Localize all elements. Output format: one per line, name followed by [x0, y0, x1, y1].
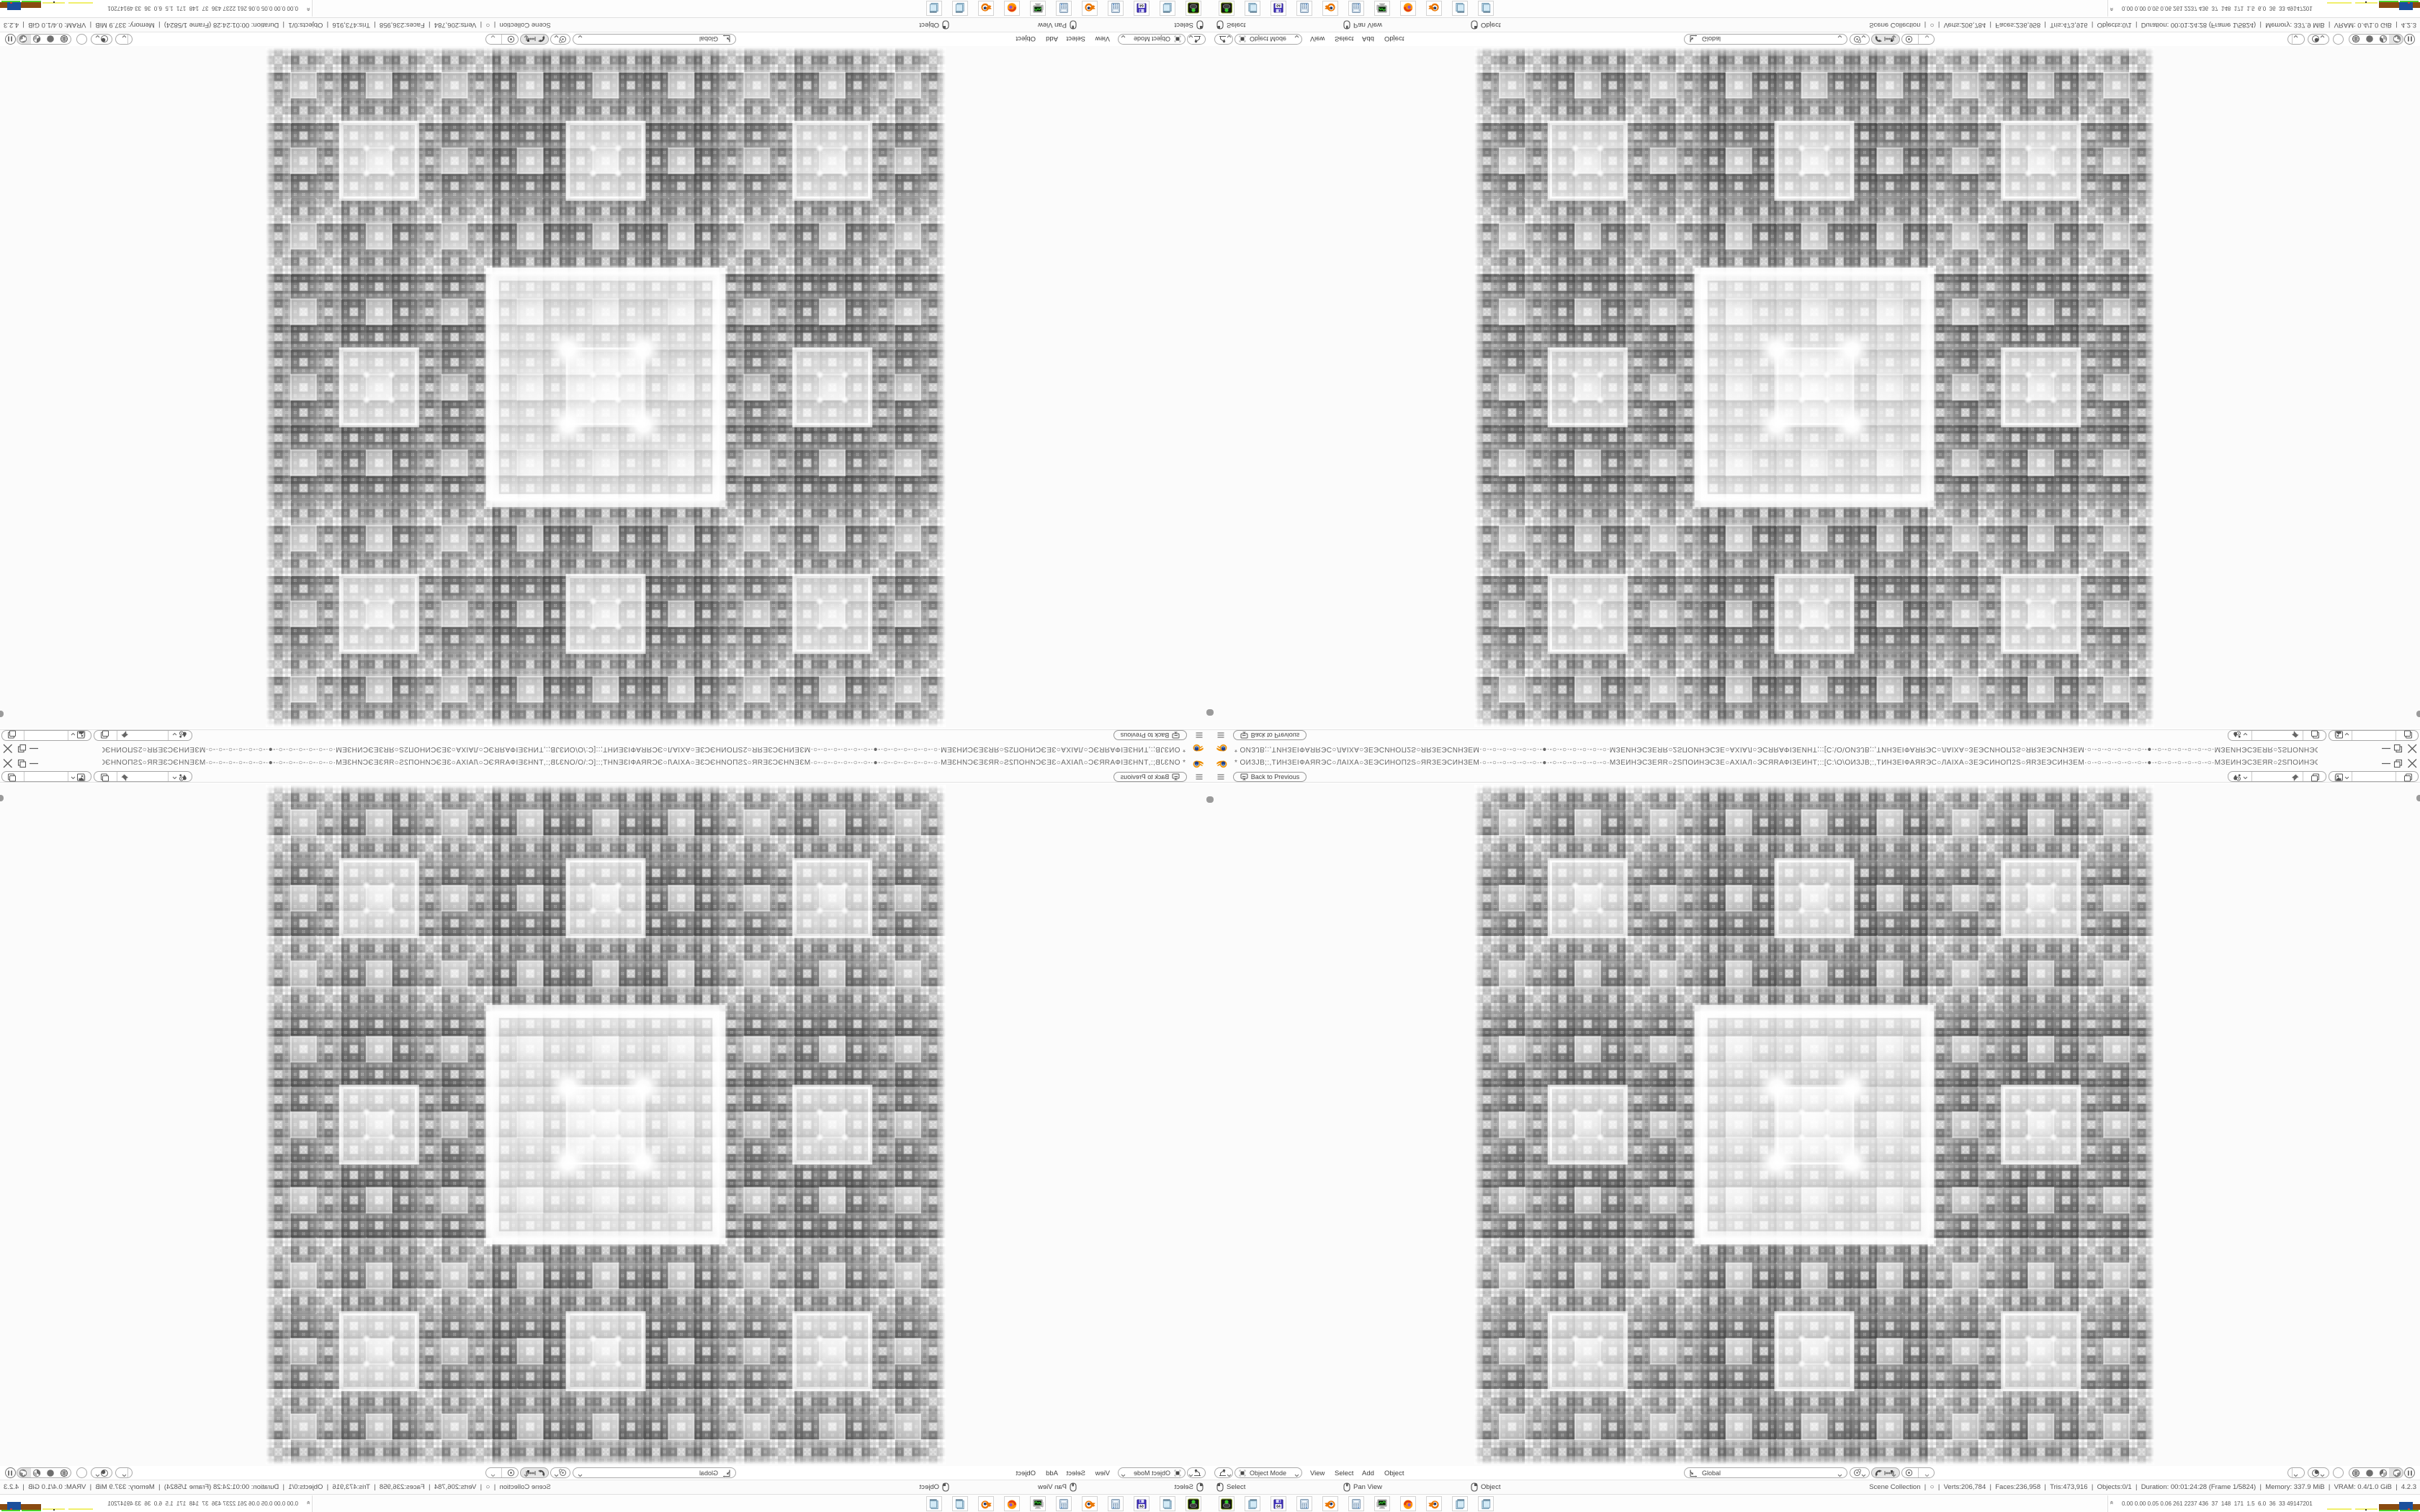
svg-text:64: 64 — [1276, 1505, 1281, 1509]
svg-text:64: 64 — [1139, 1505, 1144, 1509]
svg-text:64: 64 — [1276, 3, 1281, 7]
svg-text:64: 64 — [1139, 3, 1144, 7]
